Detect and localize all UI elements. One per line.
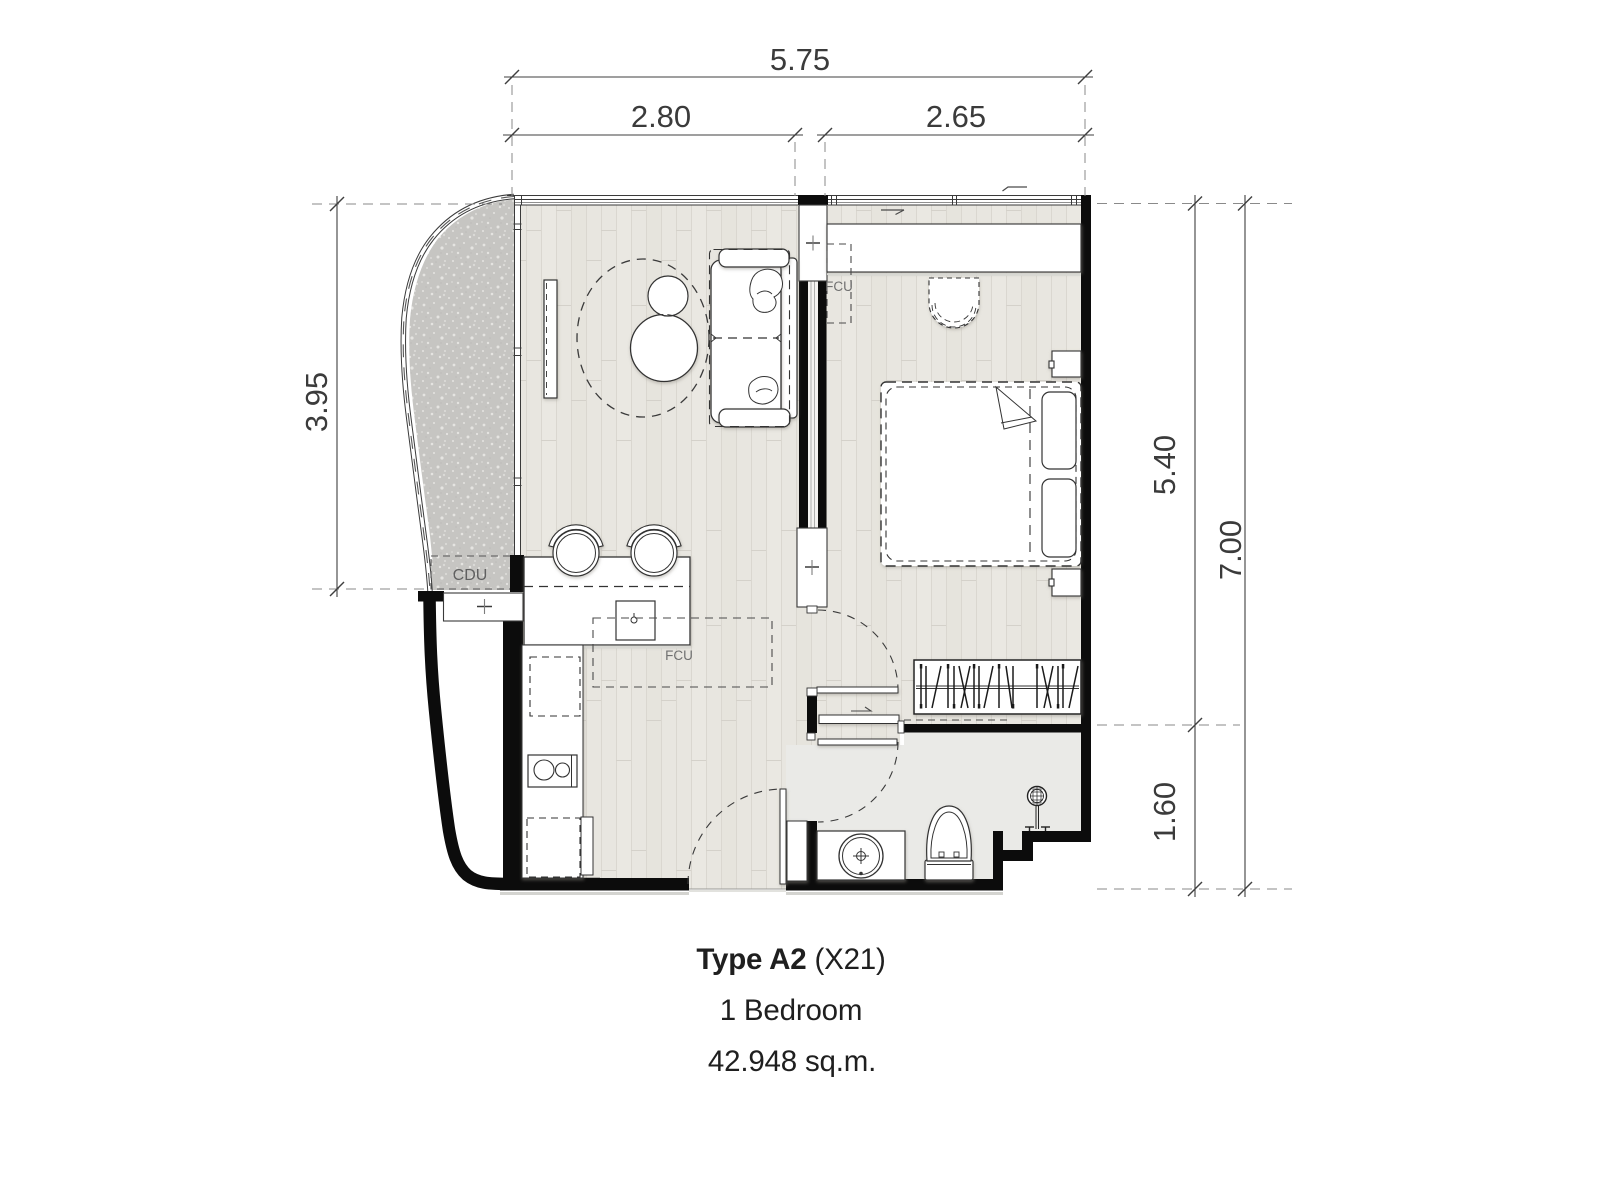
svg-text:Type A2 (X21): Type A2 (X21) <box>696 943 885 976</box>
svg-text:5.75: 5.75 <box>770 42 830 77</box>
svg-text:2.65: 2.65 <box>926 99 986 134</box>
svg-text:1 Bedroom: 1 Bedroom <box>720 994 863 1027</box>
svg-text:1.60: 1.60 <box>1147 782 1182 842</box>
svg-text:FCU: FCU <box>825 279 853 294</box>
svg-text:42.948 sq.m.: 42.948 sq.m. <box>708 1045 876 1078</box>
svg-text:7.00: 7.00 <box>1213 520 1248 580</box>
svg-text:2.80: 2.80 <box>631 99 691 134</box>
svg-text:3.95: 3.95 <box>299 372 334 432</box>
svg-text:FCU: FCU <box>665 648 693 663</box>
svg-text:5.40: 5.40 <box>1147 435 1182 495</box>
svg-text:CDU: CDU <box>453 567 488 584</box>
